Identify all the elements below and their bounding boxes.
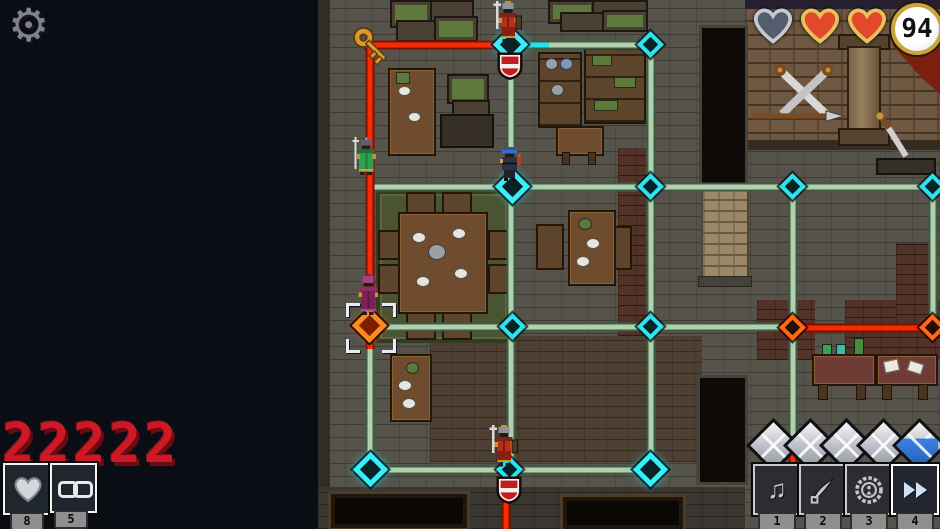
heart-full-icon [845,4,889,46]
unit-blue-captain[interactable] [492,146,528,198]
quill-icon [809,476,837,504]
crest-north [497,52,523,80]
unit-purple-acolyte[interactable] [350,274,386,332]
settings-gear-icon[interactable]: ⚙ [8,2,49,48]
chain-ability-count: 5 [54,511,88,529]
heart-ability-button[interactable] [3,463,52,515]
music-note-icon: ♫ [767,474,787,505]
fast-forward-icon [904,482,927,498]
chain-ability-button[interactable] [50,463,97,513]
seal-action-button[interactable] [845,464,893,515]
heart-full-icon [798,4,842,46]
quill-hotkey: 2 [804,513,842,529]
gold-key-item [350,22,394,72]
heart-ability-count: 8 [10,513,44,529]
fast-forward-hotkey: 4 [896,513,934,529]
round-seal-icon [854,475,884,505]
coin-counter: 94 [891,3,940,55]
selection-bracket [382,339,396,353]
music-action-button[interactable]: ♫ [753,464,801,515]
selection-bracket [346,339,360,353]
heart-icon [12,474,44,504]
seal-hotkey: 3 [850,513,888,529]
game-screen: ⚙ 94 22222 8 5 ♫ 1 2 [0,0,940,529]
quill-action-button[interactable] [799,464,847,515]
chain-link-icon [73,481,93,498]
heart-empty-icon [751,4,795,46]
unit-green-halberdier[interactable] [348,136,386,192]
fast-forward-action-button[interactable] [891,464,939,515]
unit-red-knight-south[interactable] [486,424,522,478]
unit-red-knight-north[interactable] [490,0,526,52]
music-hotkey: 1 [758,513,796,529]
crest-south [496,476,522,504]
